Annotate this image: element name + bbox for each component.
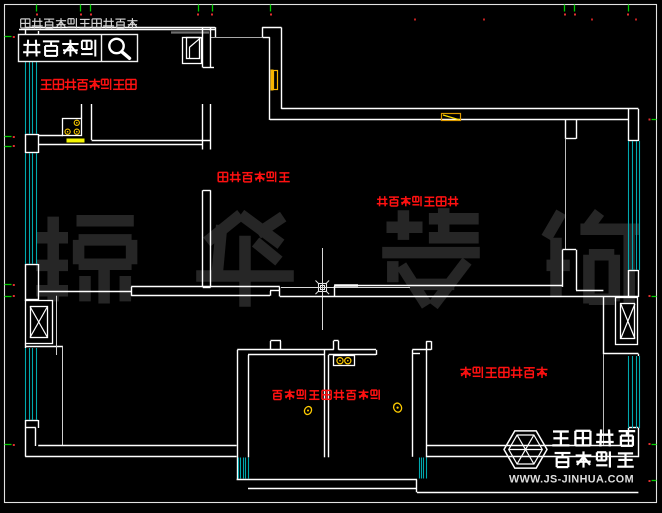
svg-text:WWW.JS-JINHUA.COM: WWW.JS-JINHUA.COM — [509, 474, 634, 486]
